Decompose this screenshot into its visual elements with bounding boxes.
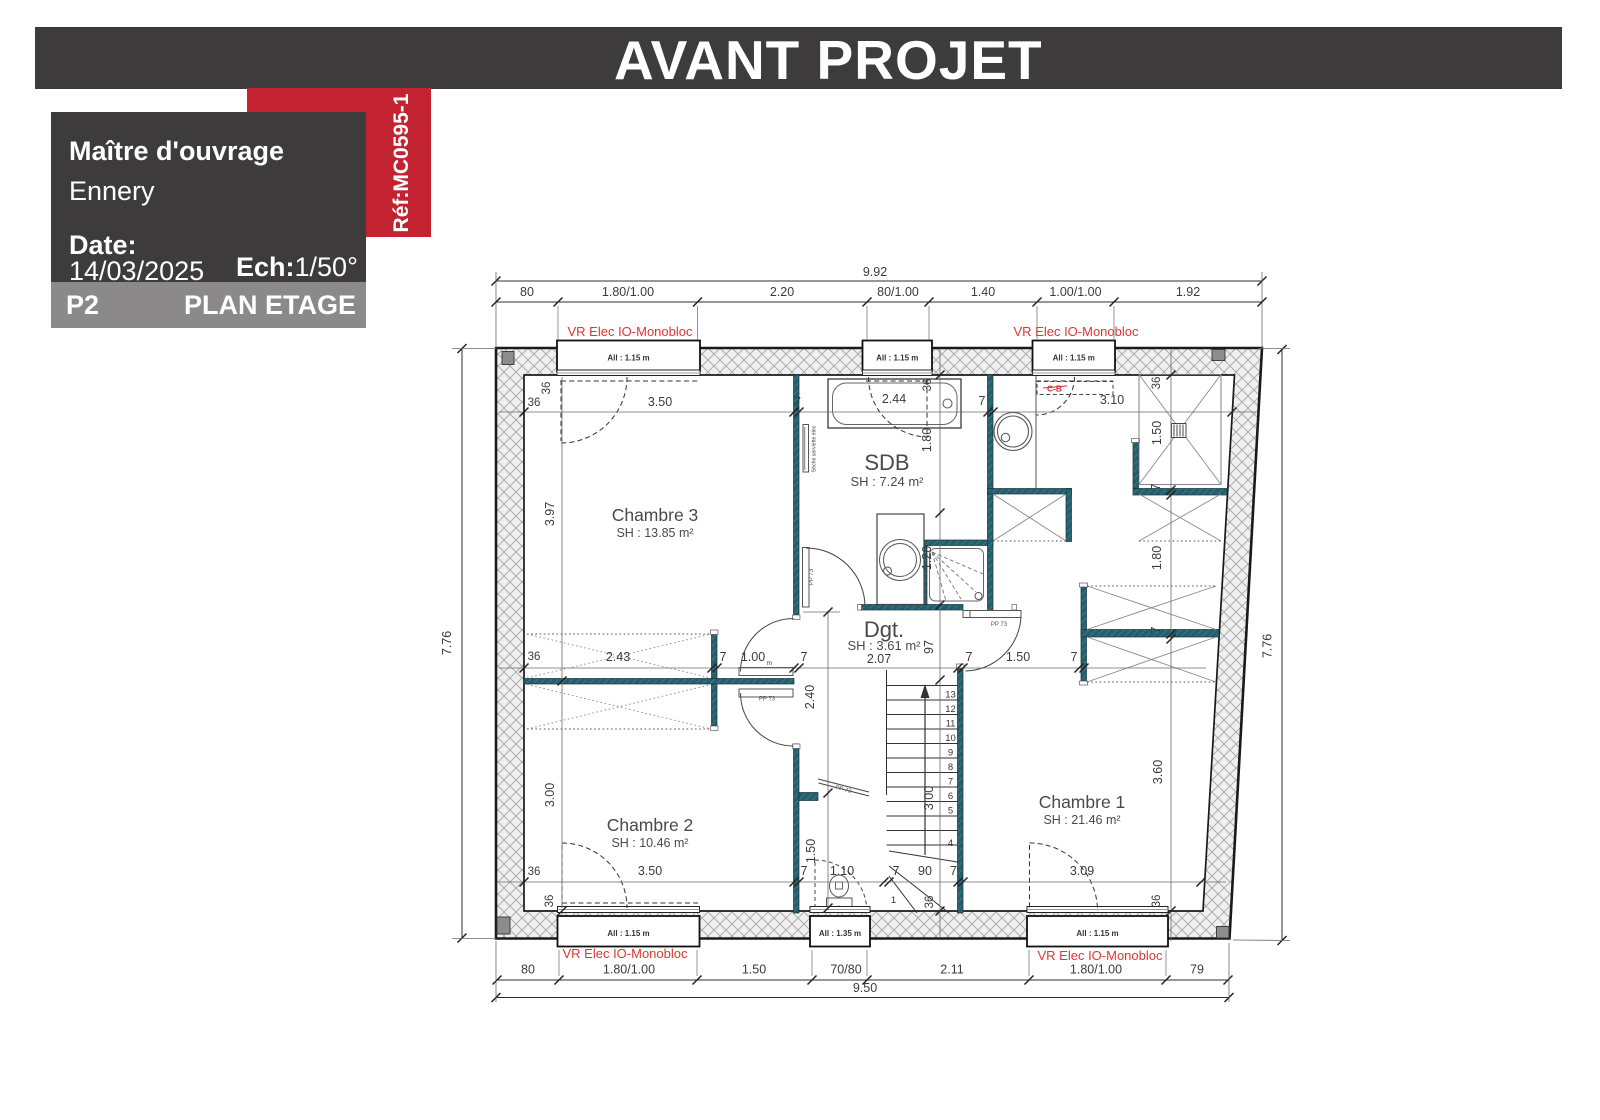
svg-text:1.92: 1.92	[1176, 285, 1200, 299]
svg-text:All : 1.15 m: All : 1.15 m	[1076, 929, 1118, 938]
svg-text:7: 7	[801, 650, 808, 664]
svg-text:VR Elec IO-Monobloc: VR Elec IO-Monobloc	[568, 324, 693, 339]
svg-text:80: 80	[520, 285, 534, 299]
svg-text:3.50: 3.50	[648, 395, 672, 409]
svg-text:1: 1	[891, 895, 896, 906]
svg-text:7: 7	[1149, 626, 1163, 633]
svg-text:SH : 7.24 m²: SH : 7.24 m²	[851, 474, 925, 489]
svg-text:1.50: 1.50	[742, 963, 766, 977]
svg-text:3.10: 3.10	[1100, 393, 1124, 407]
svg-text:36: 36	[924, 896, 936, 909]
svg-text:7: 7	[720, 650, 727, 664]
svg-text:7: 7	[1071, 650, 1078, 664]
svg-text:11: 11	[946, 719, 956, 730]
svg-text:36: 36	[922, 379, 934, 392]
svg-text:36: 36	[528, 397, 541, 409]
svg-text:3.60: 3.60	[1151, 760, 1165, 784]
svg-text:PP 73: PP 73	[991, 622, 1008, 628]
svg-text:36: 36	[544, 895, 556, 908]
svg-text:2.44: 2.44	[882, 392, 906, 406]
svg-text:1.80: 1.80	[920, 428, 934, 452]
svg-text:36: 36	[528, 866, 541, 878]
svg-text:90: 90	[918, 864, 932, 878]
svg-text:SH : 10.46 m²: SH : 10.46 m²	[611, 836, 688, 850]
svg-text:1.80/1.00: 1.80/1.00	[603, 963, 655, 977]
svg-text:70/80: 70/80	[830, 963, 861, 977]
svg-text:80: 80	[521, 963, 535, 977]
svg-text:36: 36	[1151, 377, 1163, 390]
svg-text:7: 7	[966, 650, 973, 664]
svg-text:SH : 13.85 m²: SH : 13.85 m²	[616, 526, 693, 540]
svg-text:3.50: 3.50	[638, 864, 662, 878]
svg-text:7: 7	[979, 394, 986, 408]
svg-text:8: 8	[948, 762, 953, 773]
svg-text:10: 10	[945, 733, 956, 744]
svg-text:VR Elec IO-Monobloc: VR Elec IO-Monobloc	[563, 946, 688, 961]
svg-text:7: 7	[794, 395, 801, 409]
svg-text:1.10: 1.10	[830, 864, 854, 878]
svg-text:PP 73: PP 73	[759, 697, 776, 703]
svg-text:4: 4	[948, 838, 953, 849]
svg-text:1.50: 1.50	[1006, 650, 1030, 664]
svg-text:36: 36	[528, 651, 541, 663]
svg-text:SDB: SDB	[864, 450, 909, 475]
svg-text:VR Elec IO-Monobloc: VR Elec IO-Monobloc	[1038, 948, 1163, 963]
svg-text:1.80/1.00: 1.80/1.00	[602, 285, 654, 299]
svg-text:13: 13	[945, 690, 956, 701]
svg-text:All : 1.15 m: All : 1.15 m	[607, 354, 649, 363]
svg-text:1.80/1.00: 1.80/1.00	[1070, 963, 1122, 977]
svg-text:3.09: 3.09	[1070, 864, 1094, 878]
svg-text:2.43: 2.43	[606, 650, 630, 664]
svg-text:1.00/1.00: 1.00/1.00	[1049, 285, 1101, 299]
svg-text:Sèche serviette élec: Sèche serviette élec	[812, 425, 818, 472]
svg-text:All : 1.15 m: All : 1.15 m	[876, 354, 918, 363]
svg-text:7: 7	[1149, 483, 1163, 490]
svg-text:7: 7	[801, 864, 808, 878]
svg-text:2.40: 2.40	[803, 685, 817, 709]
svg-text:1.00: 1.00	[741, 650, 765, 664]
svg-text:36: 36	[1151, 895, 1163, 908]
svg-text:80/1.00: 80/1.00	[877, 285, 919, 299]
svg-text:Chambre 2: Chambre 2	[607, 815, 694, 835]
svg-text:97: 97	[922, 640, 936, 654]
svg-text:36: 36	[541, 382, 553, 395]
svg-text:1.80: 1.80	[1150, 546, 1164, 570]
svg-text:Chambre 1: Chambre 1	[1039, 792, 1126, 812]
svg-text:3.00: 3.00	[922, 786, 936, 810]
svg-text:9.50: 9.50	[853, 981, 877, 995]
svg-text:All : 1.15 m: All : 1.15 m	[607, 929, 649, 938]
svg-text:C-B: C-B	[1047, 384, 1062, 394]
svg-text:12: 12	[945, 704, 956, 715]
svg-text:7: 7	[948, 777, 953, 788]
svg-text:2.11: 2.11	[940, 963, 963, 977]
svg-text:9: 9	[948, 748, 953, 759]
svg-text:1.50: 1.50	[1150, 421, 1164, 445]
svg-text:3.00: 3.00	[543, 783, 557, 807]
svg-text:2.07: 2.07	[867, 652, 891, 666]
svg-text:3.97: 3.97	[543, 502, 557, 526]
svg-text:7.76: 7.76	[440, 631, 454, 655]
svg-text:6: 6	[948, 791, 953, 802]
svg-text:1.20: 1.20	[920, 546, 934, 570]
svg-text:VR Elec IO-Monobloc: VR Elec IO-Monobloc	[1014, 324, 1139, 339]
svg-text:1.50: 1.50	[804, 839, 818, 863]
svg-text:Chambre 3: Chambre 3	[612, 505, 699, 525]
svg-text:m: m	[767, 660, 772, 667]
svg-text:7: 7	[893, 864, 900, 878]
svg-text:1.40: 1.40	[971, 285, 995, 299]
svg-text:5: 5	[948, 806, 953, 817]
svg-text:SH : 3.61 m²: SH : 3.61 m²	[848, 638, 922, 653]
svg-text:7.76: 7.76	[1261, 634, 1275, 658]
svg-text:SH : 21.46 m²: SH : 21.46 m²	[1043, 813, 1120, 827]
svg-text:9.92: 9.92	[863, 265, 887, 279]
svg-text:7: 7	[950, 864, 957, 878]
svg-text:All : 1.35 m: All : 1.35 m	[819, 929, 861, 938]
svg-text:79: 79	[1190, 963, 1204, 977]
svg-text:2.20: 2.20	[770, 285, 794, 299]
svg-text:All : 1.15 m: All : 1.15 m	[1053, 354, 1095, 363]
svg-text:PP 73: PP 73	[809, 568, 815, 585]
